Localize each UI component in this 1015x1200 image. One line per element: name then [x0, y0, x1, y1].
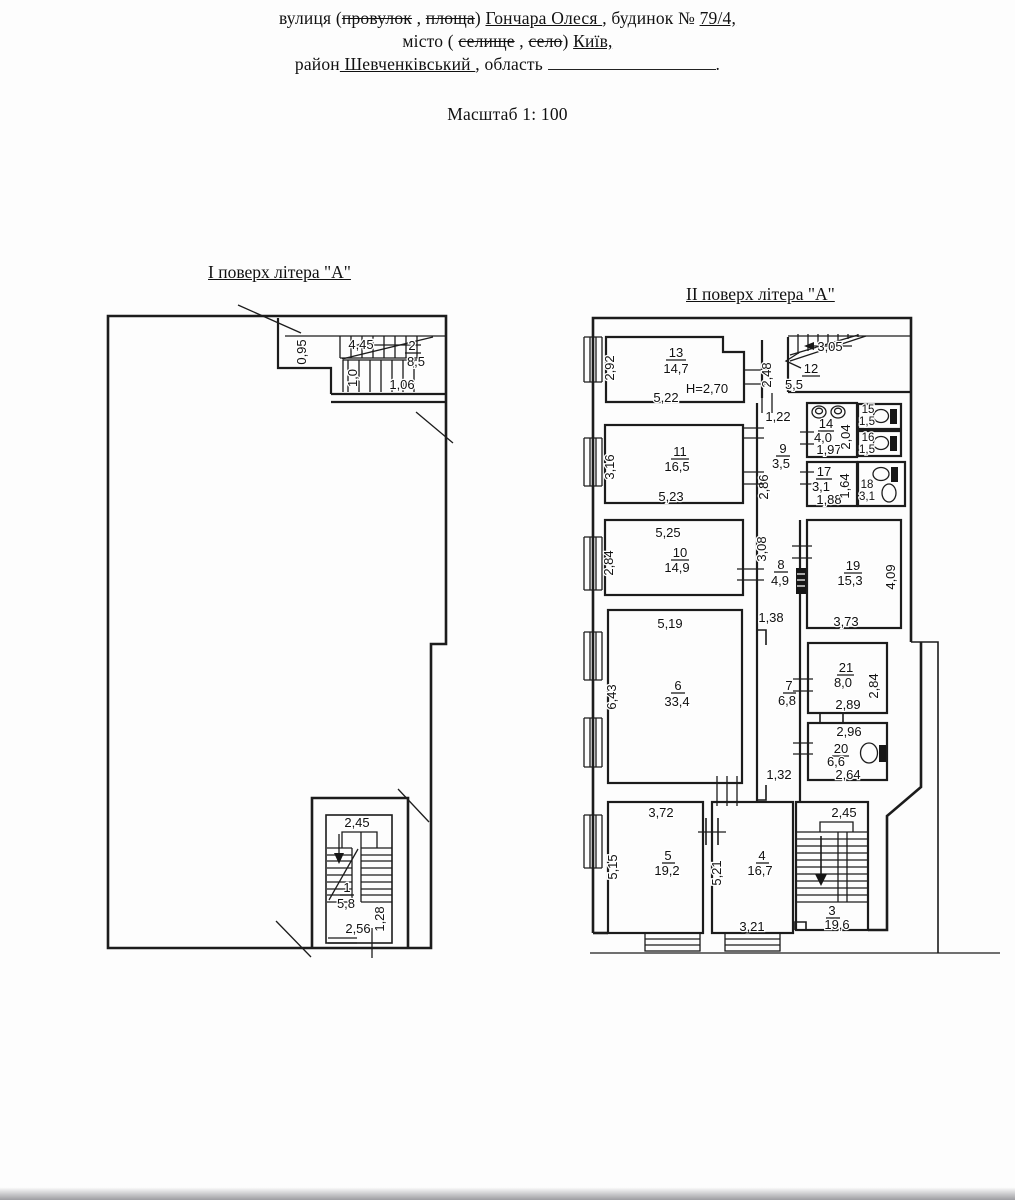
- break-line: [398, 789, 429, 822]
- door-jamb: [820, 713, 843, 723]
- room-4: 4 16,7 5,21 3,21: [709, 802, 793, 934]
- dim-label: 3,72: [648, 805, 673, 820]
- dim-label: 1,0: [345, 369, 360, 387]
- door-ticks: [737, 569, 764, 580]
- scan-edge-shadow: [0, 1187, 1015, 1200]
- dim-label: 5,23: [658, 489, 683, 504]
- room-number: 21: [839, 660, 853, 675]
- room-number: 16: [862, 432, 875, 444]
- washbasin-icon: [835, 408, 842, 414]
- room-area: 14,9: [664, 560, 689, 575]
- washbasin-icon: [816, 408, 823, 414]
- room-area: 6,8: [778, 693, 796, 708]
- dim-label: 5,25: [655, 525, 680, 540]
- room-area: 5,8: [337, 896, 355, 911]
- room-number: 19: [846, 558, 860, 573]
- stair-treads: [796, 832, 868, 902]
- toilet-tank-icon: [890, 436, 897, 451]
- break-line: [416, 412, 453, 443]
- door-ticks: [792, 546, 812, 558]
- room-area: 3,1: [859, 491, 875, 503]
- dim-label: 2,96: [836, 724, 861, 739]
- dim-label: 2,56: [345, 921, 370, 936]
- dim-label: 3,21: [739, 919, 764, 934]
- room-number: 7: [785, 678, 792, 693]
- room-number: 1: [343, 880, 350, 895]
- window-sill: [725, 933, 780, 951]
- dim-label: 3,08: [754, 536, 769, 561]
- dim-label: 5,22: [653, 390, 678, 405]
- room-area: 14,7: [663, 361, 688, 376]
- room-number: 3: [828, 903, 835, 918]
- dim-label: 3,05: [817, 339, 842, 354]
- room-number: 15: [862, 404, 875, 416]
- room-number: 2: [408, 338, 415, 353]
- room-18: 18 3,1: [858, 462, 905, 506]
- stair-hall-bottom-wall: [331, 394, 446, 402]
- dim-label: 1,64: [837, 473, 852, 498]
- wall-stubs: [757, 630, 766, 800]
- room-number: 4: [758, 848, 765, 863]
- room-area: 8,0: [834, 675, 852, 690]
- room-area: 1,5: [859, 416, 875, 428]
- room-area: 19,2: [654, 863, 679, 878]
- toilet-tank-icon: [890, 409, 897, 424]
- room-number: 5: [664, 848, 671, 863]
- room-area: 16,5: [664, 459, 689, 474]
- dim-label: 4,45: [348, 337, 373, 352]
- window-sill-lines: [645, 939, 700, 945]
- window-sill: [645, 933, 700, 951]
- room-19: 19 15,3 3,73 4,09: [792, 520, 901, 629]
- room-number: 14: [819, 416, 833, 431]
- central-corridor: 1,22 9 3,5 2,86 3,08 8 4,9 1,38 7 6,8 1,…: [754, 403, 806, 802]
- stair-landing: [820, 822, 853, 832]
- dim-label: 4,09: [883, 564, 898, 589]
- room-number: 9: [779, 441, 786, 456]
- floor-plan-canvas: 0,95 4,45 2 8,5 1,06 1,0: [0, 0, 1015, 1200]
- toilet-icon: [873, 468, 889, 481]
- entry-steps: [328, 938, 357, 948]
- dim-label: 2,64: [835, 767, 860, 782]
- room-area: 33,4: [664, 694, 689, 709]
- dim-label: 5,19: [657, 616, 682, 631]
- toilet-icon: [874, 410, 889, 423]
- dim-label: 5,15: [605, 854, 620, 879]
- dim-label: 5,21: [709, 860, 724, 885]
- room-area: 1,5: [859, 444, 875, 456]
- room-area: 19,6: [824, 917, 849, 932]
- door-ticks: [793, 743, 813, 754]
- room-number: 10: [673, 545, 687, 560]
- dim-label: 3,73: [833, 614, 858, 629]
- room-number: 12: [804, 361, 818, 376]
- floor1-outer-wall: [108, 316, 446, 948]
- dim-label: 0,95: [294, 339, 309, 364]
- room-number: 18: [861, 479, 874, 491]
- room-5: 3,72 5 19,2 5,15: [605, 802, 703, 933]
- toilet-icon: [874, 437, 889, 450]
- room-13: 13 14,7 Н=2,70 5,22 2,92: [602, 337, 770, 405]
- dim-label: 2,84: [601, 550, 616, 575]
- floor2-plan: 13 14,7 Н=2,70 5,22 2,92 2,48 3,05: [584, 318, 1000, 953]
- door-leaf-mark: [796, 568, 806, 594]
- toilet-tank-icon: [879, 745, 886, 762]
- room-3-staircase: 2,45 3 19,6: [795, 802, 868, 932]
- room-number: 8: [777, 557, 784, 572]
- floor1-top-staircase: 0,95 4,45 2 8,5 1,06 1,0: [278, 318, 446, 402]
- floor2-outer-edge: [911, 642, 938, 953]
- stair-treads-right: [361, 848, 392, 902]
- room-area: 3,5: [772, 456, 790, 471]
- stair-arrow-head: [334, 853, 344, 864]
- room-area: 4,9: [771, 573, 789, 588]
- room-area: 15,3: [837, 573, 862, 588]
- toilet-icon: [861, 743, 878, 763]
- room-number: 11: [673, 444, 687, 459]
- door-ticks: [793, 679, 813, 691]
- room-12-staircase: 2,48 3,05 12 5,5: [759, 334, 911, 413]
- break-line: [238, 305, 301, 333]
- dim-label: 1,28: [372, 906, 387, 931]
- room-number: 17: [817, 464, 831, 479]
- dim-label: 1,06: [389, 377, 414, 392]
- dim-label: 2,45: [344, 815, 369, 830]
- room-area: 16,7: [747, 863, 772, 878]
- room-area: 8,5: [407, 354, 425, 369]
- room-6: 5,19 6 33,4 6,43: [604, 610, 742, 806]
- dim-label: 3,16: [602, 454, 617, 479]
- floor1-bottom-staircase: 2,45 1 5,8 2,56 1,28: [312, 798, 408, 958]
- room-20: 2,96 20 6,6 2,64: [793, 723, 887, 782]
- dim-label: 1,22: [765, 409, 790, 424]
- dim-label: 2,84: [866, 673, 881, 698]
- room-11: 11 16,5 5,23 3,16: [602, 425, 743, 504]
- stair-arrow-head: [815, 874, 827, 886]
- break-line: [276, 921, 311, 957]
- dim-label: 1,38: [758, 610, 783, 625]
- room-10: 5,25 10 14,9 2,84: [601, 520, 764, 595]
- toilet-tank-icon: [891, 467, 898, 482]
- room-number: 13: [669, 345, 683, 360]
- dim-label: 2,86: [756, 474, 771, 499]
- room-14: 14 4,0 1,97 2,04: [800, 403, 857, 457]
- room-16: 16 1,5: [858, 431, 901, 456]
- floor1-plan: 0,95 4,45 2 8,5 1,06 1,0: [108, 305, 453, 958]
- room-21: 21 8,0 2,89 2,84: [793, 643, 887, 723]
- stair-stringers: [352, 832, 361, 902]
- bidet-icon: [882, 484, 896, 502]
- dim-label: 2,89: [835, 697, 860, 712]
- window-sill-lines: [725, 939, 780, 945]
- bottom-window-sills: [645, 933, 780, 951]
- dim-label: 2,04: [838, 424, 853, 449]
- room-area: 5,5: [785, 377, 803, 392]
- dim-label: 2,45: [831, 805, 856, 820]
- scanned-floorplan-page: вулиця (провулок , площа) Гончара Олеся …: [0, 0, 1015, 1200]
- room-number: 6: [674, 678, 681, 693]
- dim-label: 2,48: [759, 362, 774, 387]
- dim-label: 1,32: [766, 767, 791, 782]
- dim-label: 2,92: [602, 355, 617, 380]
- ceiling-height-label: Н=2,70: [686, 381, 728, 396]
- stair-landing: [342, 832, 377, 848]
- room-15: 15 1,5: [858, 404, 901, 429]
- dim-label: 6,43: [604, 684, 619, 709]
